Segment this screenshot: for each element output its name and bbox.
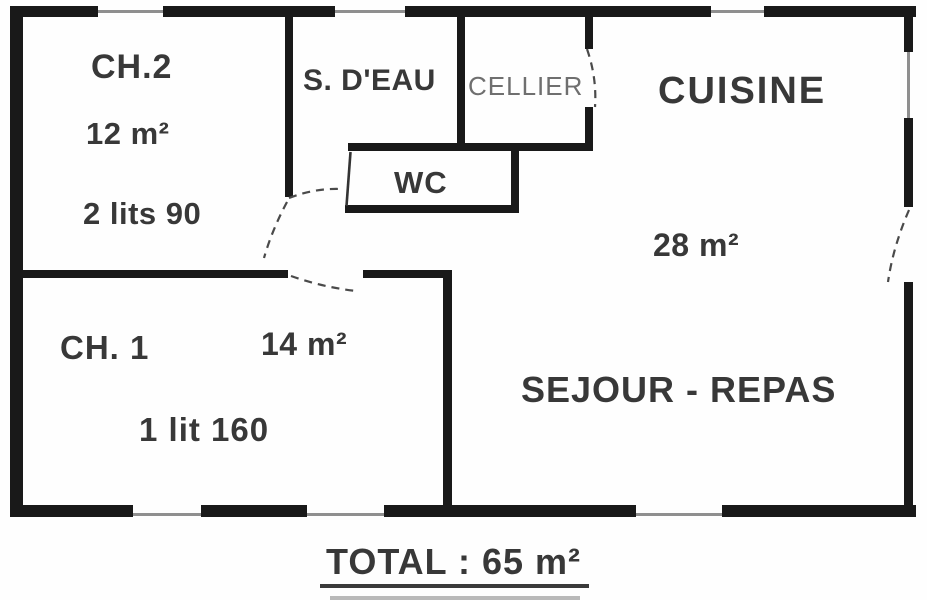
- wall-top-segment: [764, 6, 916, 17]
- wall-top-segment: [163, 6, 335, 17]
- room-note-ch2: 2 lits 90: [83, 198, 201, 229]
- total-area-label: TOTAL : 65 m²: [326, 544, 581, 580]
- wall-cellier-cuisine-upper: [585, 17, 593, 49]
- room-label-sejour: SEJOUR - REPAS: [521, 372, 836, 408]
- window-top-1: [98, 10, 163, 13]
- wall-bottom-segment: [384, 505, 636, 517]
- room-area-ch2: 12 m²: [86, 118, 169, 149]
- wall-ch2-sdeau: [285, 17, 293, 197]
- wall-right-segment: [904, 6, 913, 52]
- room-label-sdeau: S. D'EAU: [303, 66, 436, 96]
- cutoff-text-edge: [330, 596, 580, 600]
- wall-bottom-segment: [201, 505, 307, 517]
- window-right: [907, 52, 910, 118]
- room-note-ch1: 1 lit 160: [139, 413, 269, 446]
- wall-sdeau-cellier: [457, 17, 465, 143]
- wall-wc-right: [511, 151, 519, 213]
- wall-top-segment: [10, 6, 98, 17]
- total-underline: [320, 584, 589, 588]
- window-bottom-1: [133, 513, 201, 516]
- window-top-2: [335, 10, 405, 13]
- door-swing-entry: [888, 210, 909, 282]
- wall-wc-cellier-bottom: [348, 143, 593, 151]
- door-swing-ch1: [291, 276, 356, 291]
- wall-ch1-top-left: [10, 270, 288, 278]
- wall-ch1-top-right: [363, 270, 445, 278]
- wall-bottom-segment: [10, 505, 133, 517]
- door-swing-cellier: [587, 49, 595, 107]
- floor-plan: CH.2 12 m² 2 lits 90 S. D'EAU CELLIER WC…: [0, 0, 927, 600]
- window-top-3: [711, 10, 764, 13]
- wall-ch1-sejour: [443, 270, 452, 517]
- wall-wc-bottom: [345, 205, 519, 213]
- room-label-cellier: CELLIER: [468, 73, 583, 99]
- room-label-ch2: CH.2: [91, 50, 172, 84]
- room-label-wc: WC: [394, 167, 448, 198]
- wall-right-segment: [904, 118, 913, 207]
- door-swing-sdeau: [289, 189, 341, 198]
- door-swing-ch2: [264, 202, 287, 258]
- room-area-cuisine: 28 m²: [653, 229, 739, 261]
- window-bottom-2: [307, 513, 384, 516]
- window-bottom-3: [636, 513, 722, 516]
- wall-left: [10, 6, 23, 517]
- room-label-ch1: CH. 1: [60, 331, 149, 364]
- room-label-cuisine: CUISINE: [658, 72, 826, 110]
- wall-top-segment: [405, 6, 711, 17]
- wall-bottom-segment: [722, 505, 916, 517]
- wall-right-segment: [904, 282, 913, 517]
- room-area-ch1: 14 m²: [261, 328, 347, 360]
- wc-door-leaf: [347, 152, 351, 206]
